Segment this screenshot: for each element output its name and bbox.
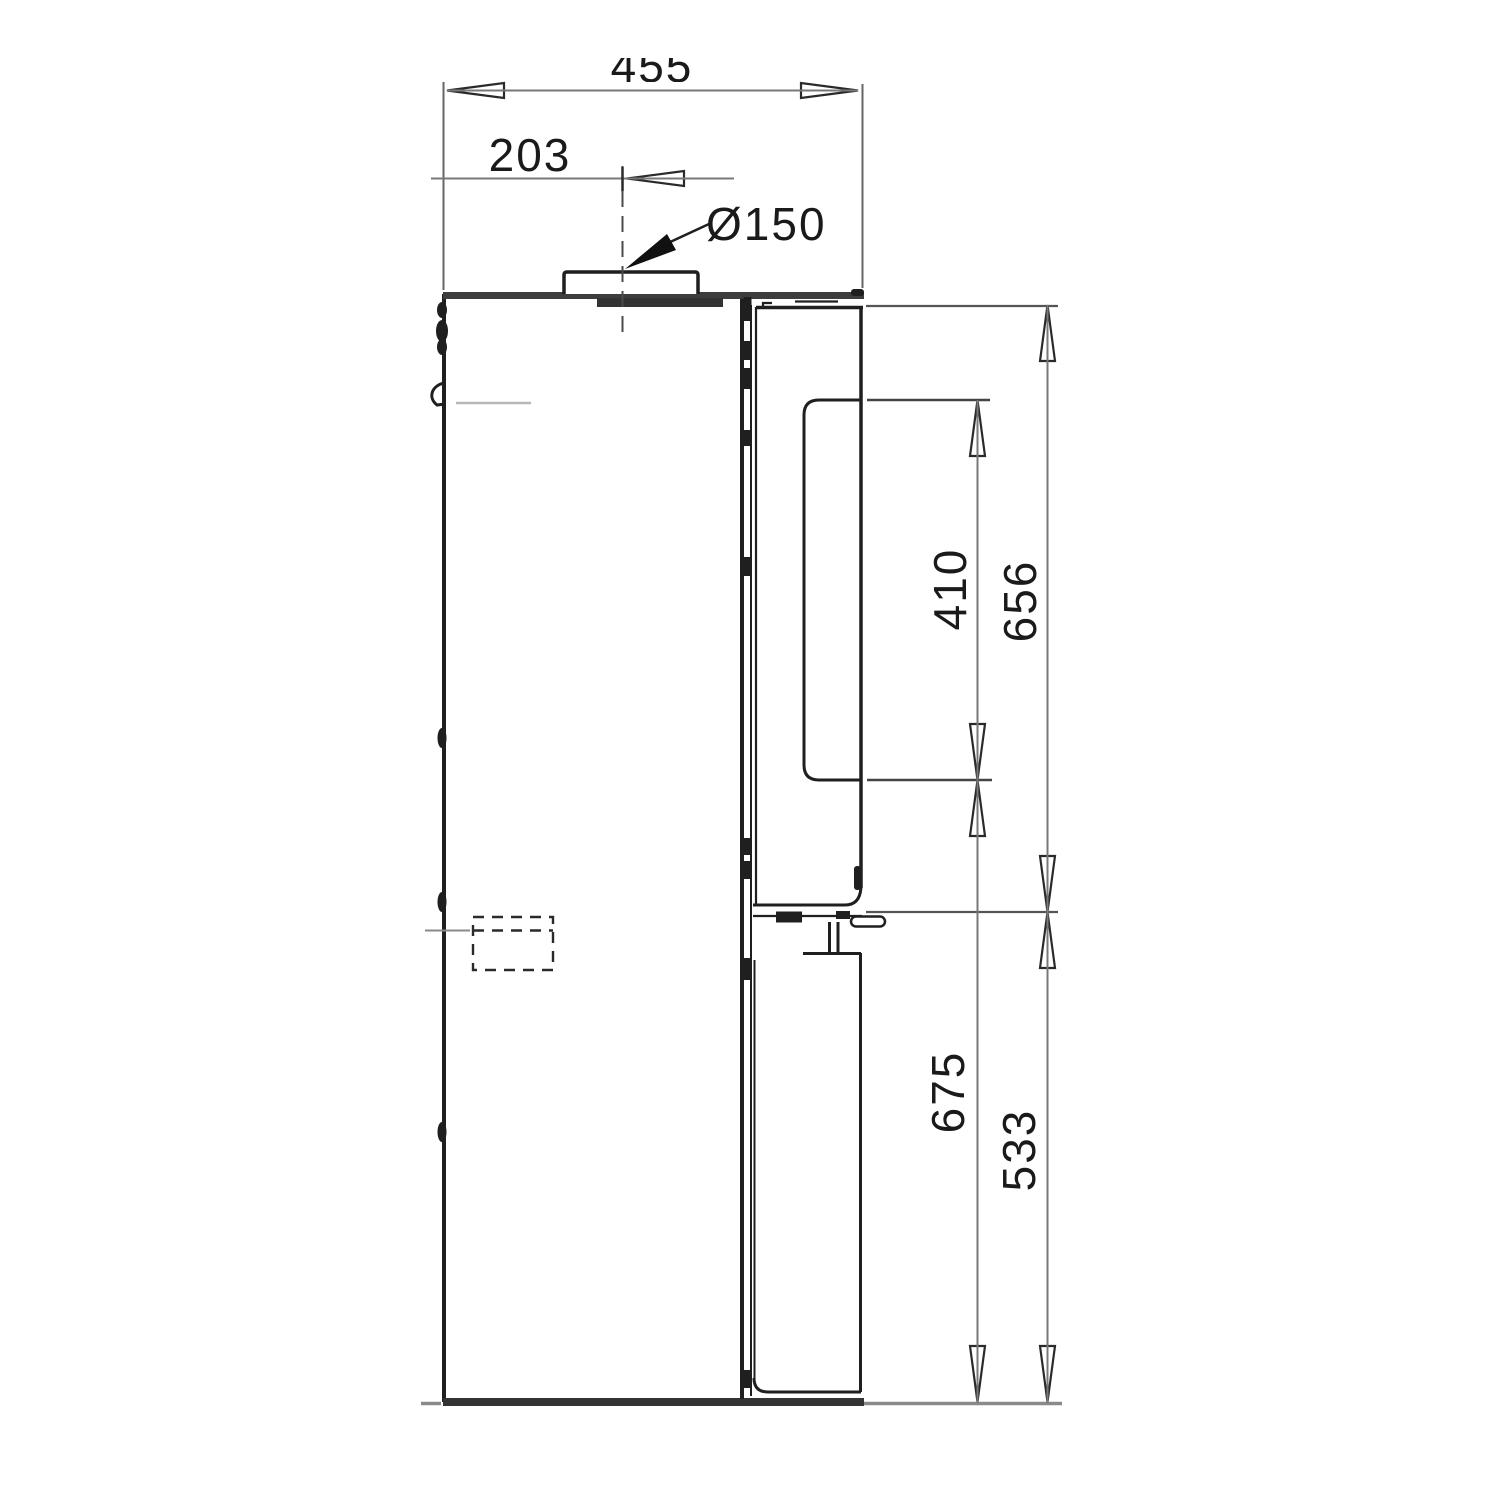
flue-collar bbox=[564, 166, 723, 333]
door-glass-recess bbox=[804, 400, 862, 780]
stove-side-elevation-drawing: 455 203 Ø150 410 656 675 533 bbox=[0, 0, 1500, 1500]
door-panel bbox=[753, 302, 885, 954]
door-handle bbox=[753, 911, 885, 953]
dim-top-width-value: 455 bbox=[594, 58, 710, 82]
dim-top-width-label: 455 bbox=[594, 58, 710, 82]
dim-lower-height-label: 533 bbox=[992, 1070, 1046, 1230]
dim-glass-height-label: 410 bbox=[923, 509, 977, 669]
dim-upper-height-label: 656 bbox=[993, 521, 1047, 681]
stove-body bbox=[421, 289, 1062, 1404]
dim-flue-offset-label: 203 bbox=[470, 128, 590, 182]
lower-panel bbox=[754, 953, 861, 1392]
dimension-lines bbox=[431, 82, 1058, 1402]
flue-leader bbox=[625, 224, 709, 269]
dim-glass-to-floor-label: 675 bbox=[921, 1012, 975, 1172]
dim-flue-diameter-label: Ø150 bbox=[706, 197, 827, 251]
